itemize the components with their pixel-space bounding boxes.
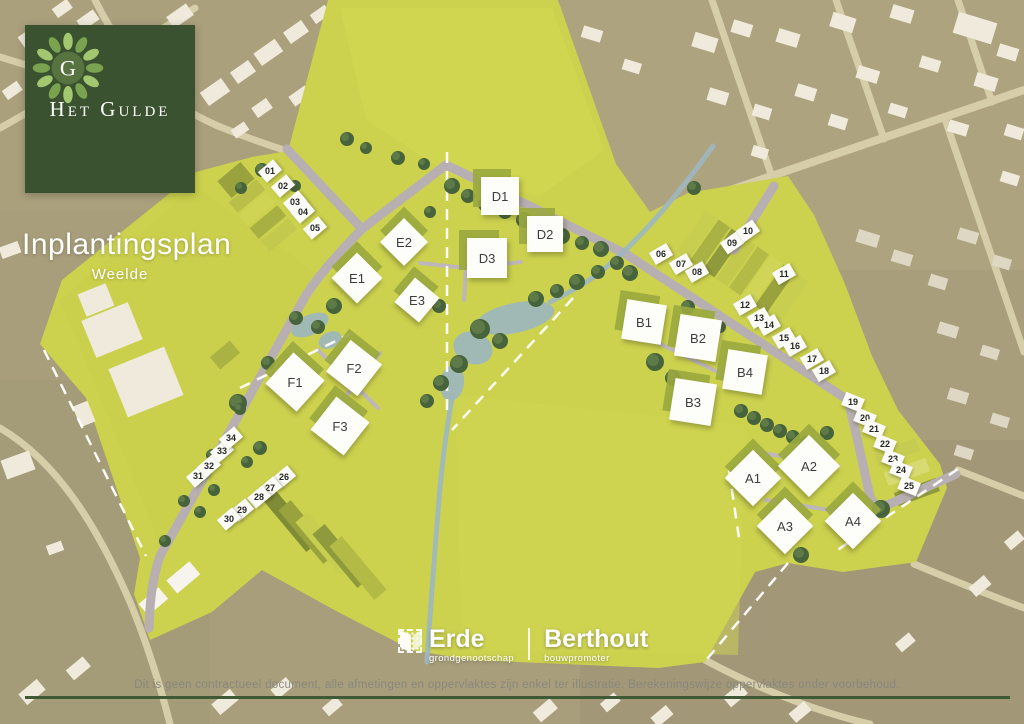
block-B1[interactable]: B1 — [621, 299, 667, 345]
berthout-tagline: bouwpromoter — [544, 653, 648, 664]
page-subtitle: Weelde — [22, 266, 218, 283]
block-A4[interactable]: A4 — [825, 493, 882, 550]
block-D3[interactable]: D3 — [467, 238, 507, 278]
block-B2[interactable]: B2 — [674, 314, 722, 362]
partner-divider — [528, 628, 530, 660]
berthout-logo-icon — [398, 626, 424, 656]
logo-monogram: G — [60, 56, 76, 81]
partner-logos: Erde grondgenootschap Berthout bouwpromo… — [398, 626, 648, 664]
block-F3[interactable]: F3 — [311, 397, 370, 456]
footer-rule — [25, 696, 1010, 699]
page-title: Inplantingsplan — [22, 228, 218, 262]
block-B3[interactable]: B3 — [669, 378, 717, 426]
block-A3[interactable]: A3 — [757, 498, 814, 555]
block-D2[interactable]: D2 — [527, 216, 563, 252]
block-E1[interactable]: E1 — [332, 253, 383, 304]
erde-tagline: grondgenootschap — [429, 653, 514, 664]
plan-title: Inplantingsplan Weelde — [22, 228, 218, 283]
block-E3[interactable]: E3 — [394, 277, 439, 322]
disclaimer-text: Dit is geen contractueel document, alle … — [112, 679, 922, 691]
erde-name: Erde — [429, 626, 514, 652]
brand-logo-card: G Het Gulde — [25, 25, 195, 193]
block-D1[interactable]: D1 — [481, 177, 519, 215]
block-B4[interactable]: B4 — [722, 349, 768, 395]
logo-wreath-icon: G — [25, 25, 111, 111]
berthout-name: Berthout — [544, 626, 648, 652]
block-E2[interactable]: E2 — [380, 218, 428, 266]
site-plan-poster: E1E2E3D1D2D3F1F2F3B1B2B4B3A1A2A3A4 01020… — [0, 0, 1024, 724]
block-F1[interactable]: F1 — [265, 352, 324, 411]
partner-berthout: Berthout bouwpromoter — [544, 626, 648, 664]
